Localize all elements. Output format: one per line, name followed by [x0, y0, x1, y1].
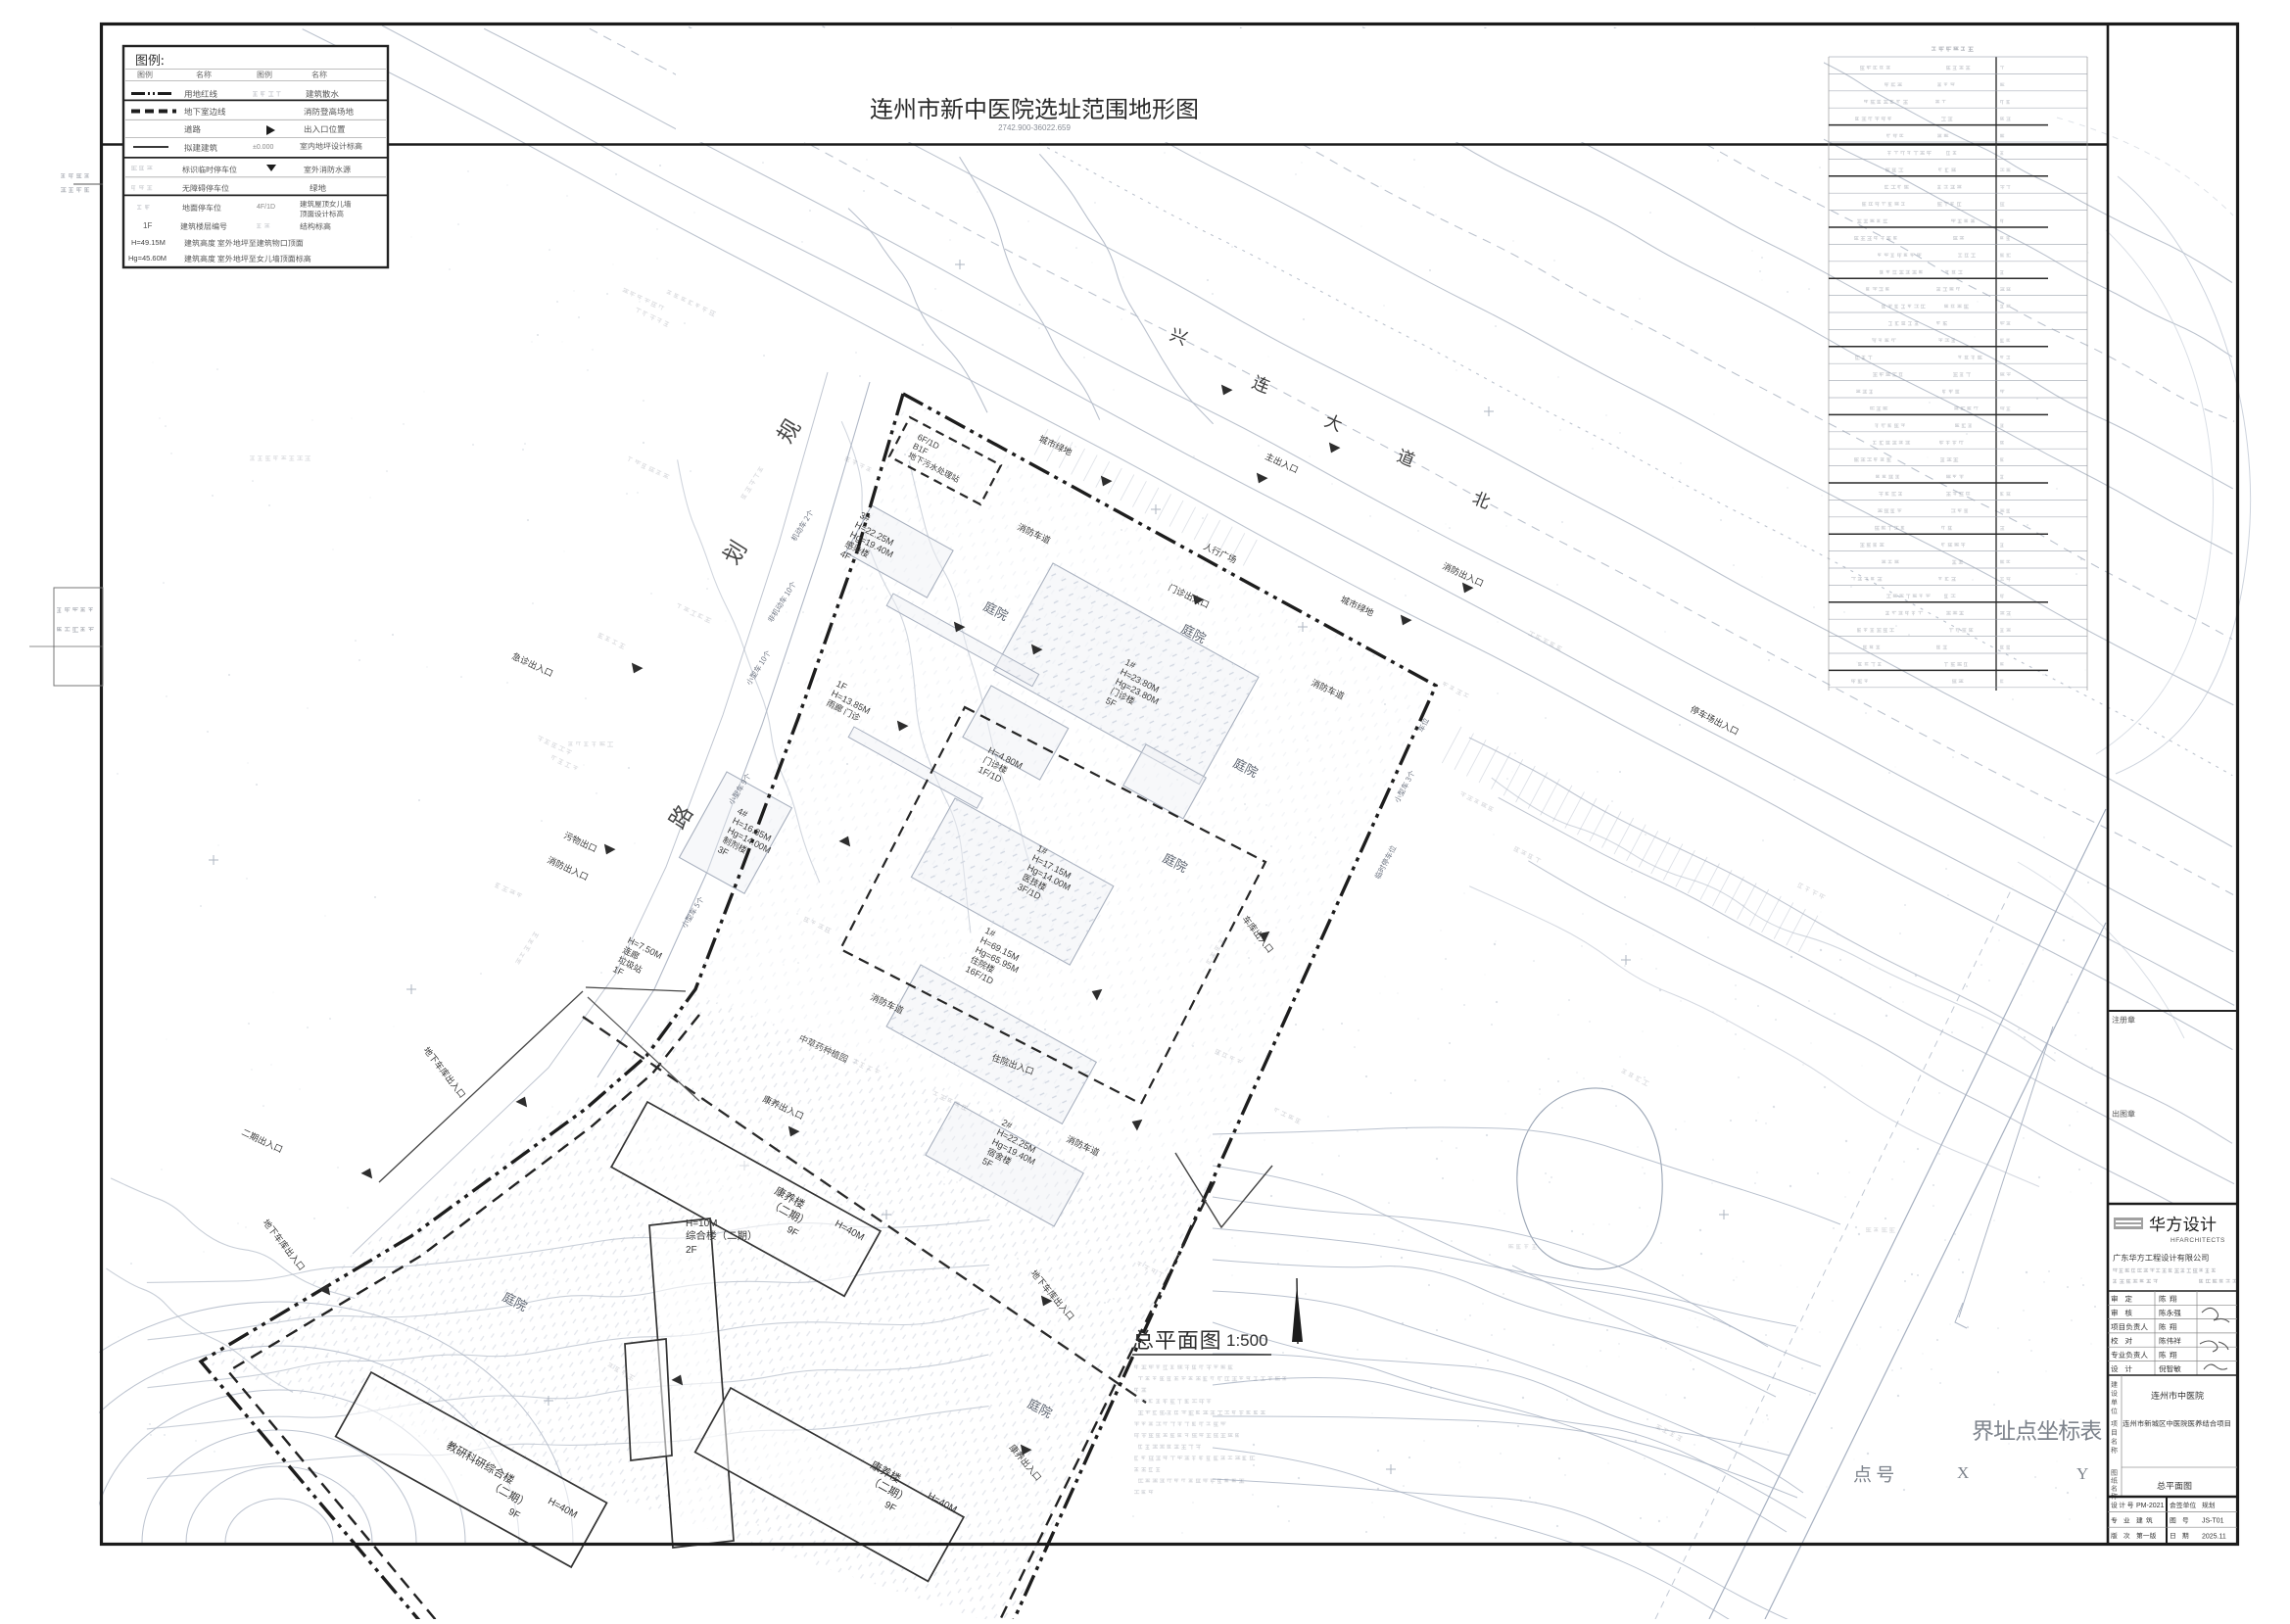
svg-text:H=10M: H=10M	[686, 1218, 718, 1229]
svg-text:HFARCHITECTS: HFARCHITECTS	[2171, 1237, 2225, 1244]
svg-text:1F: 1F	[143, 221, 152, 230]
svg-text:2025.11: 2025.11	[2202, 1533, 2226, 1540]
svg-text:H=49.15M: H=49.15M	[131, 238, 166, 247]
svg-text:Y: Y	[2076, 1464, 2088, 1483]
svg-text:JS-T01: JS-T01	[2202, 1518, 2224, 1525]
svg-text:2742.900-36022.659: 2742.900-36022.659	[998, 123, 1071, 132]
svg-text:2F: 2F	[686, 1245, 697, 1256]
svg-text:Hg=45.60M: Hg=45.60M	[128, 254, 167, 263]
svg-text:1:500: 1:500	[1226, 1331, 1268, 1350]
svg-text:X: X	[1957, 1463, 1969, 1482]
svg-text:PM-2021: PM-2021	[2136, 1503, 2165, 1509]
svg-text:4F/1D: 4F/1D	[257, 204, 275, 211]
svg-text:±0.000: ±0.000	[253, 144, 273, 151]
